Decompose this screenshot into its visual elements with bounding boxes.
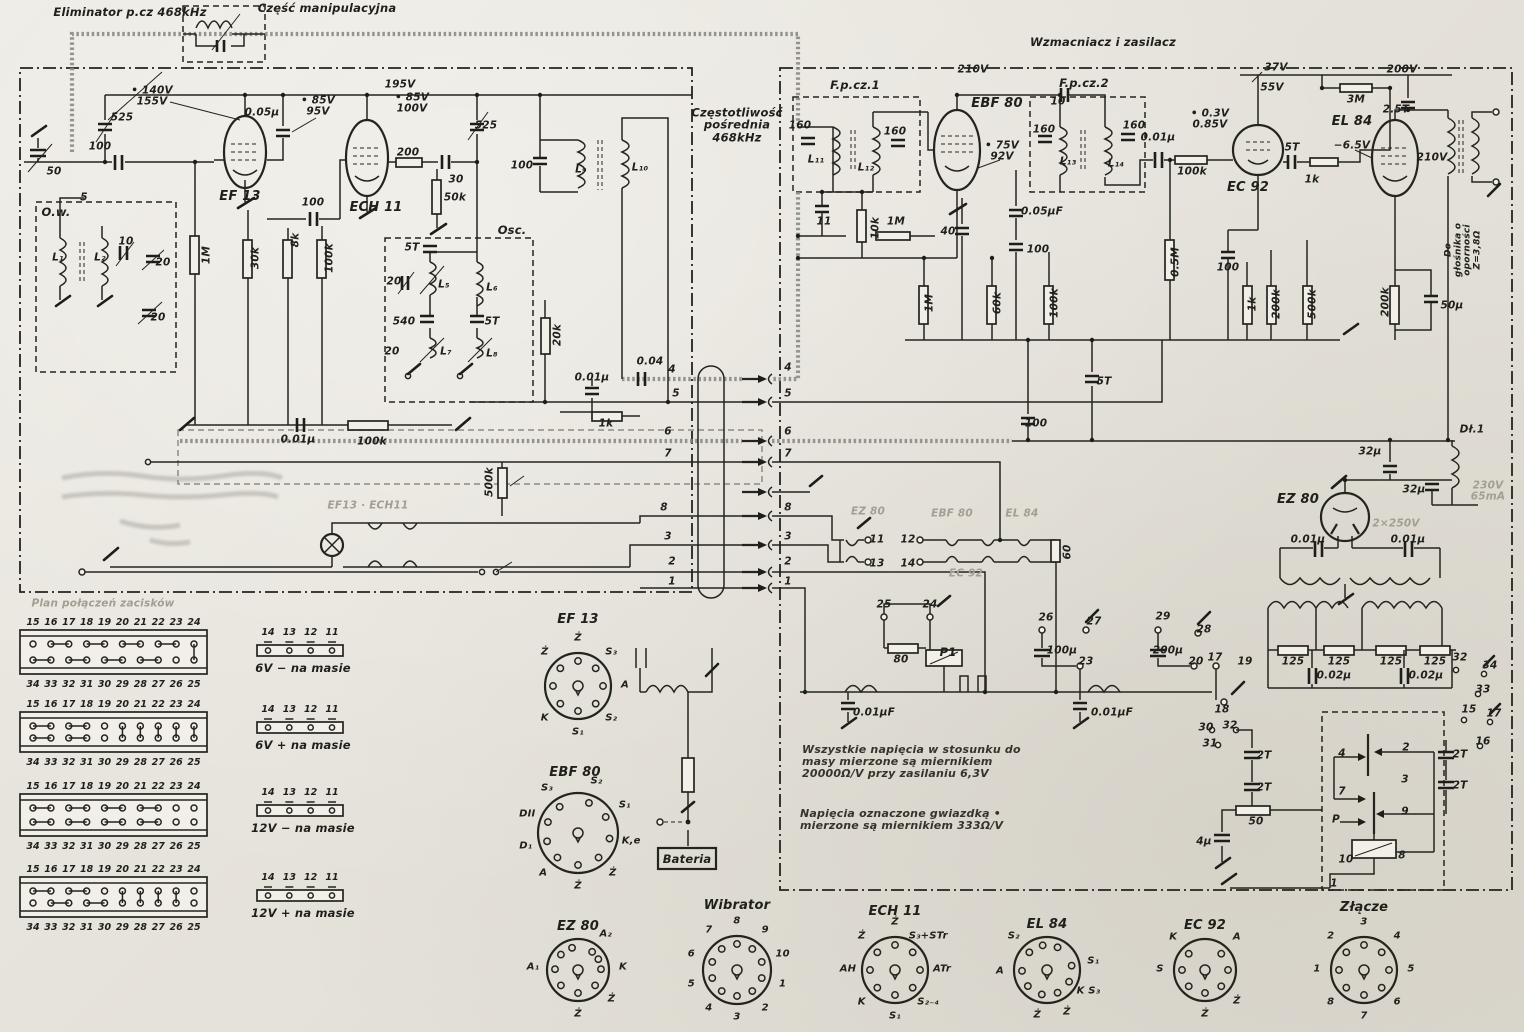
socket-ec92	[1174, 939, 1236, 1001]
schematic-generated	[0, 0, 1524, 1032]
socket-el84	[1014, 937, 1080, 1003]
socket-ez80	[547, 939, 609, 1001]
socket-ech11	[862, 937, 928, 1003]
socket-ebf80	[538, 793, 618, 873]
socket-wibrator	[703, 936, 771, 1004]
socket-zlacze	[1331, 937, 1397, 1003]
schematic-canvas: Eliminator p.cz 468kHzCzęść manipulacyjn…	[0, 0, 1524, 1032]
socket-ef13	[545, 653, 611, 719]
